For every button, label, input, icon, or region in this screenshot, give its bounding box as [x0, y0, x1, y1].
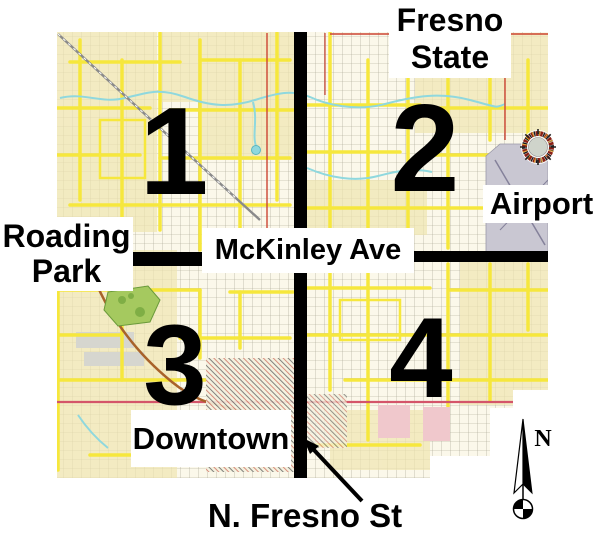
north-arrow-icon [514, 419, 533, 519]
fresno-state-label: Fresno State [389, 0, 511, 78]
airport-label: Airport [483, 185, 600, 223]
downtown-grid [307, 394, 347, 448]
survey-marker-icon [514, 500, 533, 519]
quadrant-number-3: 3 [143, 309, 206, 423]
pond [252, 146, 261, 155]
downtown-label: Downtown [131, 410, 291, 467]
n-fresno-st-label: N. Fresno St [200, 496, 410, 536]
compass-rose-icon [520, 129, 556, 165]
quadrant-number-4: 4 [389, 302, 452, 416]
roading-park-label: Roading Park [0, 217, 133, 291]
cemetery-block [84, 352, 144, 366]
north-label: N [531, 426, 555, 452]
mckinley-ave-line-left [125, 252, 203, 266]
fresno-state-line1: Fresno [397, 2, 504, 39]
quadrant-number-1: 1 [140, 90, 209, 214]
fresno-state-line2: State [411, 39, 489, 76]
mckinley-ave-label: McKinley Ave [202, 228, 414, 273]
mckinley-ave-line-right [413, 251, 548, 262]
fresno-quadrant-map: 1 2 3 4 Fresno State Airport Roading Par… [0, 0, 600, 536]
roading-park-line1: Roading [3, 219, 131, 254]
roading-park-line2: Park [32, 254, 101, 289]
quadrant-number-2: 2 [391, 87, 460, 211]
